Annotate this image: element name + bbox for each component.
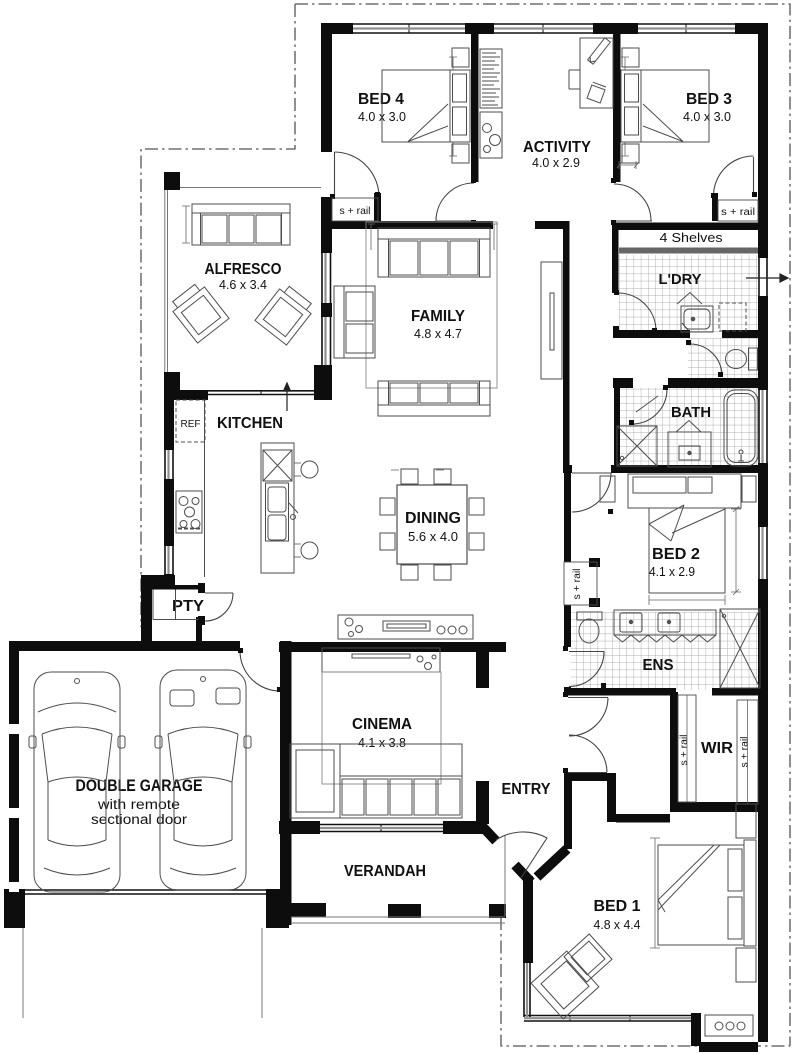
svg-text:s + rail: s + rail bbox=[678, 735, 690, 766]
svg-text:4.6 x 3.4: 4.6 x 3.4 bbox=[219, 278, 267, 292]
svg-text:sectional door: sectional door bbox=[91, 812, 188, 827]
svg-text:FAMILY: FAMILY bbox=[411, 308, 466, 325]
svg-text:ENS: ENS bbox=[643, 657, 674, 674]
svg-text:BED 2: BED 2 bbox=[652, 546, 700, 563]
svg-text:5.6 x 4.0: 5.6 x 4.0 bbox=[408, 530, 458, 544]
svg-text:4 Shelves: 4 Shelves bbox=[660, 230, 724, 245]
svg-text:BATH: BATH bbox=[671, 404, 711, 421]
svg-text:4.8 x 4.4: 4.8 x 4.4 bbox=[594, 918, 641, 932]
svg-text:s + rail: s + rail bbox=[340, 205, 371, 217]
svg-text:with remote: with remote bbox=[97, 797, 180, 812]
svg-text:s + rail: s + rail bbox=[571, 569, 583, 600]
svg-text:PTY: PTY bbox=[172, 598, 205, 615]
svg-text:ACTIVITY: ACTIVITY bbox=[523, 139, 592, 156]
svg-text:4.0 x 2.9: 4.0 x 2.9 bbox=[532, 156, 580, 170]
svg-text:4.0 x 3.0: 4.0 x 3.0 bbox=[683, 110, 731, 124]
svg-text:s + rail: s + rail bbox=[721, 206, 755, 218]
svg-text:4.1 x 3.8: 4.1 x 3.8 bbox=[358, 736, 406, 750]
svg-text:BED 1: BED 1 bbox=[594, 898, 641, 915]
svg-text:ENTRY: ENTRY bbox=[502, 781, 552, 798]
svg-text:KITCHEN: KITCHEN bbox=[217, 415, 283, 432]
svg-text:WIR: WIR bbox=[701, 740, 733, 757]
svg-text:4.8 x 4.7: 4.8 x 4.7 bbox=[414, 327, 462, 341]
svg-text:VERANDAH: VERANDAH bbox=[344, 863, 426, 880]
svg-text:BED 4: BED 4 bbox=[358, 91, 404, 108]
svg-text:ALFRESCO: ALFRESCO bbox=[205, 261, 282, 278]
svg-text:DINING: DINING bbox=[405, 510, 461, 527]
svg-text:s + rail: s + rail bbox=[739, 737, 751, 768]
svg-text:REF: REF bbox=[181, 418, 201, 430]
svg-text:L'DRY: L'DRY bbox=[659, 271, 702, 288]
svg-text:CINEMA: CINEMA bbox=[352, 716, 412, 733]
svg-text:4.1 x 2.9: 4.1 x 2.9 bbox=[649, 565, 695, 579]
